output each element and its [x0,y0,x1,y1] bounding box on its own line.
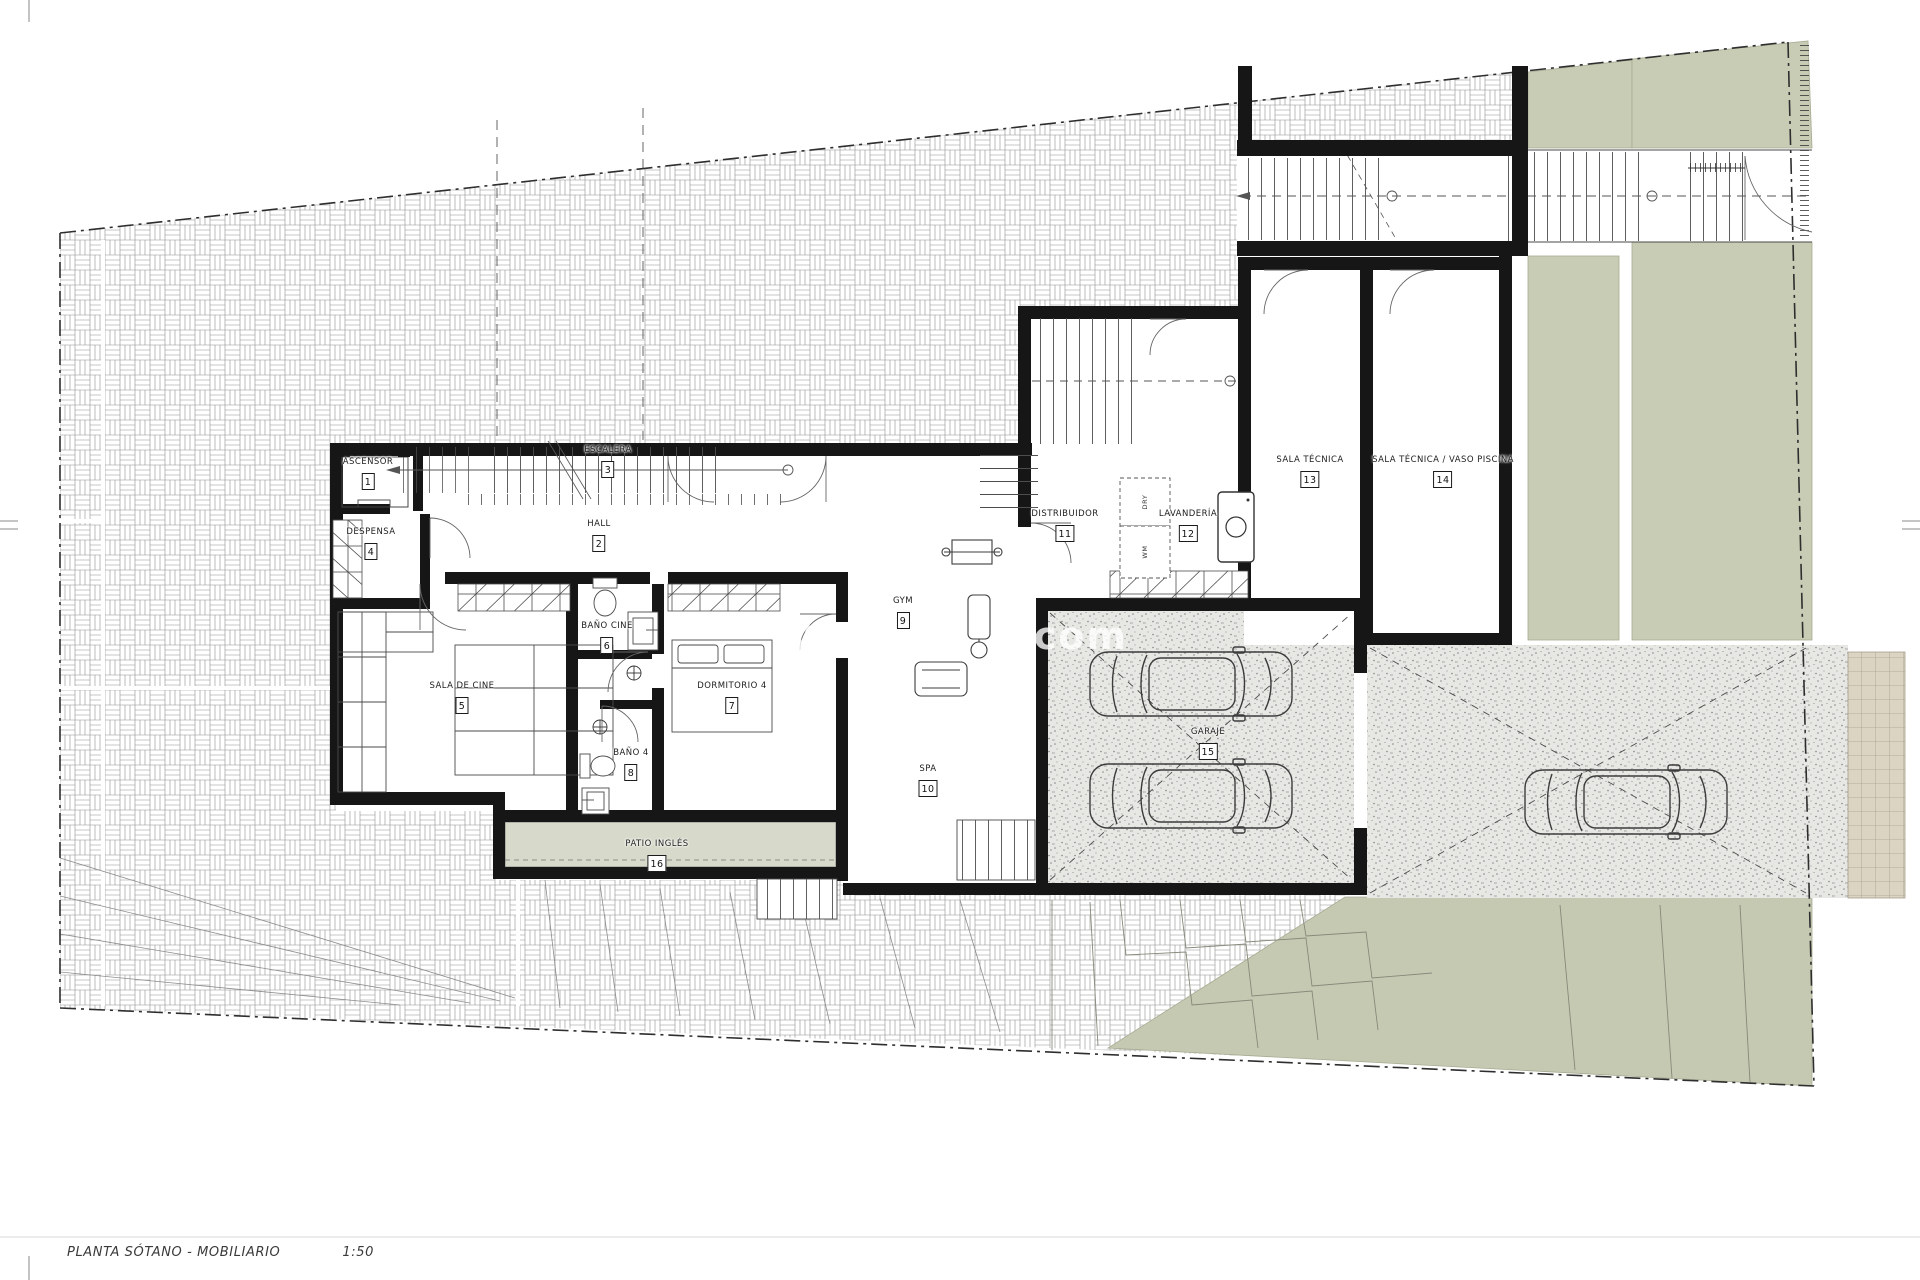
room-number-box: 7 [725,697,738,714]
room-label-bano-4: BAÑO 4 8 [613,749,649,781]
toilet2-tank [580,754,590,778]
patio-steps [757,879,837,919]
room-number-box: 13 [1300,471,1319,488]
plan-title: PLANTA SÓTANO - MOBILIARIO [67,1245,280,1260]
room-label-ascensor: ASCENSOR 1 [343,458,393,490]
toilet2-bowl [591,756,615,776]
toilet-bowl [594,590,616,616]
room-label-sala-de-cine: SALA DE CINE 5 [429,682,494,714]
room-label-gym: GYM 9 [893,597,913,629]
boundary-ticks [1800,44,1809,240]
room-number-box: 3 [601,461,614,478]
room-label-bano-cine: BAÑO CINE 6 [581,622,633,654]
washer [1218,492,1254,562]
room-label-spa: SPA 10 [919,765,938,797]
room-number-box: 10 [919,780,938,797]
room-number-box: 9 [896,612,909,629]
room-number-box: 5 [455,697,468,714]
retaining-wall-strip [1848,652,1905,898]
room-number-box: 14 [1434,471,1453,488]
room-number-box: 6 [601,637,614,654]
room-number-box: 4 [364,543,377,560]
room-label-despensa: DESPENSA 4 [346,528,395,560]
landscape-green [1528,41,1812,640]
room-label-garaje: GARAJE 15 [1191,728,1225,760]
title-block: PLANTA SÓTANO - MOBILIARIO 1:50 [67,1245,374,1260]
room-number-box: 15 [1198,743,1217,760]
room-label-distribuidor: DISTRIBUIDOR 11 [1031,510,1098,542]
dryer-label: DRY [1141,495,1149,510]
room-number-box: 16 [648,855,667,872]
plan-scale: 1:50 [342,1245,374,1260]
room-label-lavanderia: LAVANDERÍA 12 [1159,510,1217,542]
washer-label: WM [1141,545,1149,558]
room-label-escalera: ESCALERA 3 [584,446,632,478]
room-number-box: 11 [1056,525,1075,542]
toilet-tank [593,578,617,588]
room-number-box: 12 [1178,525,1197,542]
room-number-box: 8 [624,764,637,781]
room-label-dormitorio-4: DORMITORIO 4 7 [697,682,766,714]
hall-steps [980,453,1038,509]
driveway-gravel [1048,611,1848,898]
room-number-box: 2 [592,535,605,552]
floor-plan-drawing [0,0,1920,1280]
room-label-hall: HALL 2 [587,520,610,552]
drawing-sheet: ASCENSOR 1 HALL 2 ESCALERA 3 DESPENSA 4 … [0,0,1920,1280]
room-label-patio-ingles: PATIO INGLÉS 16 [625,840,688,872]
spa-steps [957,820,1035,880]
room-label-sala-tecnica-vaso-piscina: SALA TÉCNICA / VASO PISCINA 14 [1372,456,1514,488]
room-label-sala-tecnica: SALA TÉCNICA 13 [1276,456,1343,488]
room-number-box: 1 [362,473,375,490]
